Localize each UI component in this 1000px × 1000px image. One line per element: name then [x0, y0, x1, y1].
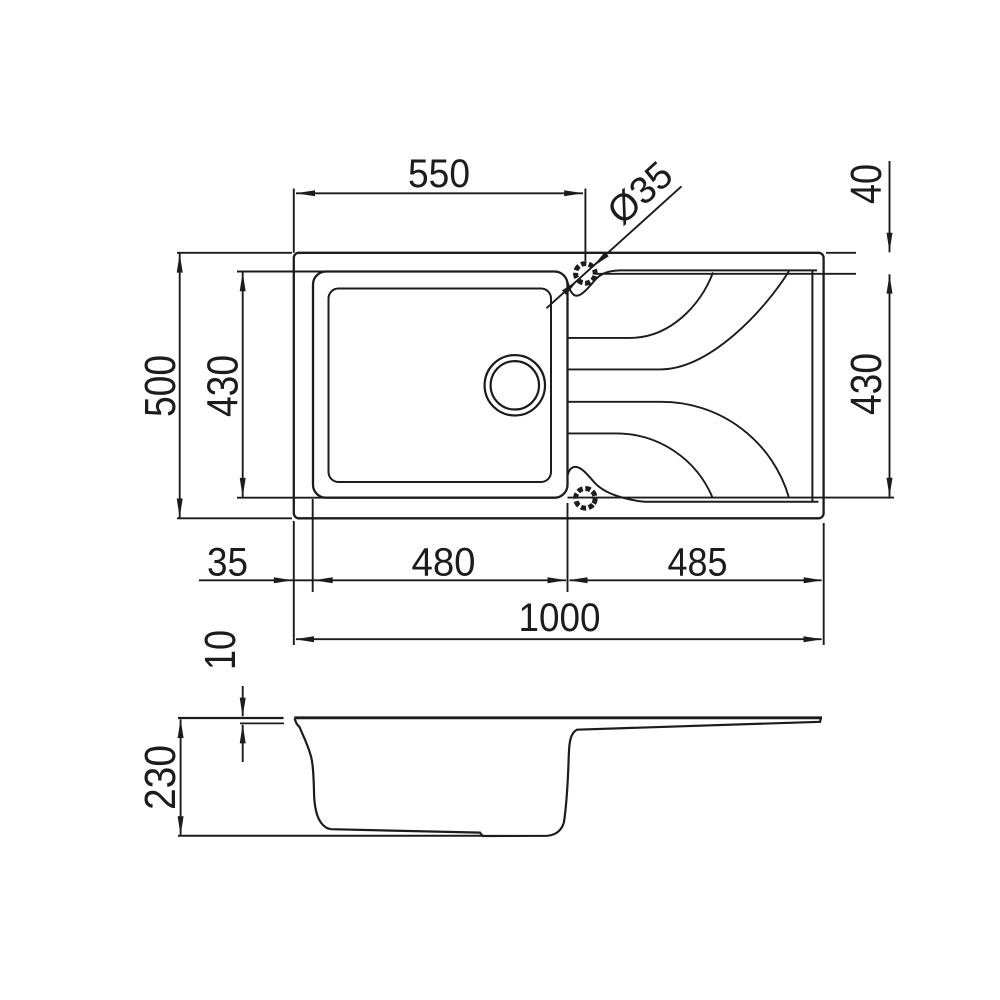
svg-text:430: 430: [842, 353, 891, 415]
svg-text:500: 500: [136, 355, 185, 417]
svg-text:550: 550: [408, 152, 470, 196]
svg-text:1000: 1000: [519, 596, 601, 640]
svg-text:40: 40: [842, 164, 891, 204]
svg-text:485: 485: [668, 541, 728, 585]
svg-text:10: 10: [196, 630, 245, 670]
svg-text:480: 480: [412, 541, 476, 585]
svg-text:430: 430: [199, 355, 248, 417]
svg-text:230: 230: [136, 745, 185, 810]
svg-text:35: 35: [207, 541, 248, 585]
